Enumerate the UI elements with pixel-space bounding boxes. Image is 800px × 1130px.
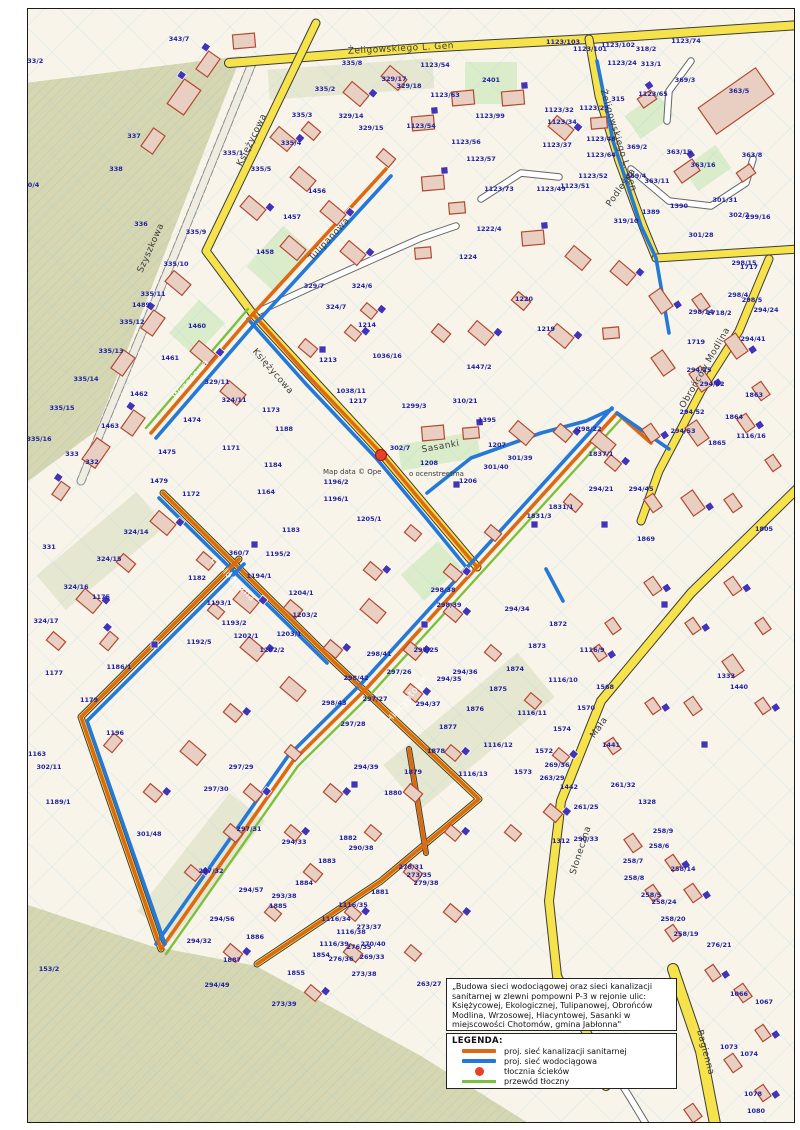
building [501, 90, 524, 106]
parcel-label: 335/13 [99, 347, 124, 355]
map-frame: 343/7133/2337338340/4336335/8335/2335/33… [27, 8, 795, 1123]
parcel-label: 324/16 [64, 583, 89, 591]
parcel-label: 1116/16 [736, 432, 766, 440]
parcel-label: 1205/1 [357, 515, 382, 523]
parcel-label: 1074 [740, 1050, 759, 1058]
parcel-label: 1874 [506, 665, 525, 673]
parcel-label: 293/38 [272, 892, 297, 900]
parcel-label: 369/2 [627, 143, 647, 151]
parcel-label: 294/35 [437, 675, 462, 683]
parcel-label: 1873 [528, 642, 546, 650]
parcel-label: 1186/1 [107, 663, 132, 671]
parcel-label: 1837/1 [589, 450, 614, 458]
parcel-label: 1479 [150, 477, 169, 485]
parcel-label: 1328 [638, 798, 657, 806]
parcel-label: 258/24 [652, 898, 677, 906]
parcel-label: 310/21 [453, 397, 478, 405]
building [415, 247, 432, 259]
parcel-label: 363/11 [645, 177, 670, 185]
parcel-label: 263/27 [417, 980, 442, 988]
address-marker [521, 82, 529, 90]
parcel-label: 133/2 [28, 57, 43, 65]
parcel-label: 335/4 [281, 139, 302, 147]
parcel-label: 294/37 [416, 700, 441, 708]
parcel-label: 298/38 [431, 586, 456, 594]
parcel-label: 1207 [488, 441, 506, 449]
parcel-label: 1831/3 [527, 512, 552, 520]
parcel-label: 335/8 [342, 59, 363, 67]
parcel-label: 1440 [730, 683, 749, 691]
parcel-label: 1460 [188, 322, 207, 330]
parcel-label: 336 [134, 220, 148, 228]
parcel-label: 335/3 [292, 111, 312, 119]
parcel-label: 1224 [459, 253, 478, 261]
parcel-label: 1875 [489, 685, 508, 693]
parcel-label: 298/5 [742, 296, 763, 304]
parcel-label: 1882 [339, 834, 357, 842]
address-marker [421, 621, 428, 628]
parcel-label: 369/3 [675, 76, 695, 84]
project-title-box: „Budowa sieci wodociągowej oraz sieci ka… [446, 978, 677, 1031]
address-marker [351, 781, 358, 788]
parcel-label: 1222/4 [477, 225, 502, 233]
parcel-label: 1457 [283, 213, 301, 221]
parcel-label: 1123/54 [420, 61, 450, 69]
legend-box: LEGENDA: proj. sieć kanalizacji sanitarn… [446, 1033, 677, 1089]
address-marker [541, 222, 549, 230]
parcel-label: 297/29 [229, 763, 254, 771]
parcel-label: 302/11 [37, 763, 62, 771]
parcel-label: 1877 [439, 723, 457, 731]
parcel-label: 1884 [295, 879, 314, 887]
parcel-label: 1880 [384, 789, 403, 797]
parcel-label: 1173 [262, 406, 280, 414]
parcel-label: 1123/49 [536, 185, 566, 193]
legend-label: tłocznia ścieków [504, 1067, 569, 1076]
parcel-label: 258/9 [653, 827, 674, 835]
parcel-label: 1805 [755, 525, 774, 533]
parcel-label: 1195/2 [266, 550, 291, 558]
parcel-label: 1123/34 [547, 118, 577, 126]
parcel-label: 1299/3 [402, 402, 427, 410]
parcel-label: 301/28 [689, 231, 714, 239]
parcel-label: 298/43 [322, 699, 347, 707]
address-marker [251, 541, 258, 548]
parcel-label: 329/14 [339, 112, 364, 120]
parcel-label: 324/17 [34, 617, 59, 625]
parcel-label: 332 [85, 458, 99, 466]
parcel-label: 294/32 [187, 937, 212, 945]
building [591, 117, 608, 129]
parcel-label: 1188 [275, 425, 294, 433]
parcel-label: 1116/10 [548, 676, 578, 684]
parcel-label: 1066 [730, 990, 749, 998]
map-attribution: Map data © Ope [323, 468, 381, 476]
parcel-label: 301/40 [484, 463, 509, 471]
address-marker [431, 107, 439, 115]
address-marker [151, 641, 158, 648]
parcel-label: 1572 [535, 747, 553, 755]
parcel-label: 1067 [755, 998, 773, 1006]
parcel-label: 335/9 [186, 228, 207, 236]
parcel-label: 329/18 [397, 82, 422, 90]
parcel-label: 1312 [552, 837, 570, 845]
parcel-label: 297/26 [387, 668, 412, 676]
address-marker [441, 167, 449, 175]
parcel-label: 276/21 [707, 941, 732, 949]
parcel-label: 298/39 [437, 601, 462, 609]
parcel-label: 297/25 [414, 646, 439, 654]
parcel-label: 270/40 [361, 940, 386, 948]
parcel-label: 1863 [745, 391, 763, 399]
parcel-label: 1193/1 [207, 599, 232, 607]
parcel-label: 258/20 [661, 915, 686, 923]
parcel-label: 343/7 [169, 35, 189, 43]
parcel-label: 1203/1 [277, 630, 302, 638]
parcel-label: 263/29 [540, 774, 565, 782]
parcel-label: 1164 [257, 488, 276, 496]
parcel-label: 363/16 [691, 161, 716, 169]
parcel-label: 1831/1 [549, 503, 574, 511]
parcel-label: 1219 [537, 325, 556, 333]
parcel-label: 273/38 [352, 970, 377, 978]
parcel-label: 258/7 [623, 857, 643, 865]
parcel-label: 1883 [318, 857, 336, 865]
legend-item-water: proj. sieć wodociągowa [452, 1056, 671, 1066]
parcel-label: 319/10 [614, 217, 639, 225]
legend-heading: LEGENDA: [452, 1036, 671, 1046]
parcel-label: 340/4 [28, 181, 40, 189]
pressure-line-swatch [462, 1080, 496, 1083]
parcel-label: 1456 [308, 187, 327, 195]
parcel-label: 324/11 [222, 396, 247, 404]
parcel-label: 2401 [482, 76, 501, 84]
parcel-label: 335/12 [120, 318, 145, 326]
parcel-label: 294/41 [741, 335, 766, 343]
parcel-label: 1196/1 [324, 495, 349, 503]
parcel-label: 297/30 [204, 785, 229, 793]
parcel-label: 276/36 [329, 955, 354, 963]
parcel-label: 335/2 [315, 85, 335, 93]
parcel-label: 1202/1 [234, 632, 259, 640]
parcel-label: 1204/1 [289, 589, 314, 597]
parcel-label: 1208 [420, 459, 439, 467]
parcel-label: 1123/64 [586, 151, 616, 159]
parcel-label: 333 [65, 450, 79, 458]
parcel-label: 324/15 [97, 555, 122, 563]
pump-station-dot [376, 450, 387, 461]
parcel-label: 294/34 [505, 605, 530, 613]
parcel-label: 1116/35 [338, 901, 368, 909]
parcel-label: 1116/12 [483, 741, 513, 749]
parcel-label: 261/32 [611, 781, 636, 789]
project-title: „Budowa sieci wodociągowej oraz sieci ka… [452, 982, 652, 1029]
parcel-label: 1038/11 [336, 387, 366, 395]
parcel-label: 1183 [282, 526, 300, 534]
parcel-label: 1116/34 [321, 915, 351, 923]
pump-dot-swatch [462, 1067, 496, 1076]
parcel-label: 258/6 [649, 842, 670, 850]
parcel-label: 1878 [427, 747, 446, 755]
legend-item-pump: tłocznia ścieków [452, 1066, 671, 1076]
parcel-label: 294/52 [680, 408, 705, 416]
parcel-label: 258/19 [674, 930, 699, 938]
parcel-label: 1568 [596, 683, 615, 691]
parcel-label: 297/28 [341, 720, 366, 728]
parcel-label: 1390 [670, 202, 689, 210]
parcel-label: 1202/2 [260, 646, 285, 654]
parcel-label: 1078 [744, 1090, 763, 1098]
parcel-label: 1123/65 [638, 90, 668, 98]
parcel-label: 1879 [404, 768, 423, 776]
parcel-label: 1220 [515, 295, 534, 303]
parcel-label: 335/16 [28, 435, 52, 443]
parcel-label: 1864 [725, 413, 744, 421]
parcel-label: 1442 [560, 783, 578, 791]
parcel-label: 1194/1 [247, 572, 272, 580]
parcel-label: 1036/16 [372, 352, 402, 360]
parcel-label: 290/38 [349, 844, 374, 852]
parcel-label: 1213 [319, 356, 337, 364]
parcel-label: 1881 [371, 888, 390, 896]
parcel-label: 153/2 [39, 965, 59, 973]
parcel-label: 1123/99 [475, 112, 505, 120]
parcel-label: 1196 [106, 729, 125, 737]
parcel-label: 1719 [687, 338, 706, 346]
parcel-label: 1123/52 [578, 172, 608, 180]
building [463, 427, 480, 439]
parcel-label: 1123/73 [484, 185, 514, 193]
parcel-label: 294/21 [589, 485, 614, 493]
parcel-label: 318/2 [636, 45, 656, 53]
address-marker [701, 741, 708, 748]
parcel-label: 294/45 [629, 485, 654, 493]
parcel-label: 1116/39 [319, 940, 349, 948]
parcel-label: 1189/1 [46, 798, 71, 806]
parcel-label: 273/35 [407, 871, 432, 879]
parcel-label: 313/1 [641, 60, 662, 68]
parcel-label: 297/32 [199, 867, 224, 875]
address-marker [531, 521, 538, 528]
parcel-label: 279/38 [414, 879, 439, 887]
parcel-label: 1163 [28, 750, 46, 758]
parcel-label: 329/7 [304, 282, 324, 290]
parcel-label: 363/15 [667, 148, 692, 156]
parcel-label: 329/11 [205, 378, 230, 386]
parcel-label: 294/57 [239, 886, 264, 894]
parcel-label: 301/48 [137, 830, 162, 838]
parcel-label: 1574 [553, 725, 572, 733]
parcel-label: 1172 [182, 490, 200, 498]
parcel-label: 1196/2 [324, 478, 349, 486]
parcel-label: 294/49 [205, 981, 230, 989]
parcel-label: 1865 [708, 439, 727, 447]
parcel-label: 1203/2 [293, 611, 318, 619]
address-marker [601, 521, 608, 528]
parcel-label: 1855 [287, 969, 306, 977]
parcel-label: 1887 [223, 956, 241, 964]
parcel-label: 273/37 [357, 923, 382, 931]
parcel-label: 1177 [45, 669, 63, 677]
parcel-label: 1080 [747, 1107, 766, 1115]
legend-label: proj. sieć kanalizacji sanitarnej [504, 1047, 627, 1056]
parcel-label: 294/53 [671, 427, 696, 435]
parcel-label: 1182 [188, 574, 206, 582]
parcel-label: 360/7 [229, 549, 249, 557]
address-marker [319, 346, 326, 353]
parcel-label: 1463 [101, 422, 119, 430]
building [449, 202, 466, 214]
parcel-label: 1123/74 [671, 37, 701, 45]
parcel-label: 335/14 [74, 375, 99, 383]
parcel-label: 1184 [264, 461, 283, 469]
parcel-label: 337 [127, 132, 141, 140]
building [521, 230, 544, 246]
parcel-label: 1073 [720, 1043, 738, 1051]
parcel-label: 258/14 [671, 865, 696, 873]
parcel-label: 1123/102 [601, 41, 635, 49]
parcel-label: 297/27 [363, 695, 388, 703]
parcel-label: 258/8 [624, 874, 645, 882]
parcel-label: 335/10 [164, 260, 189, 268]
parcel-label: 1458 [256, 248, 275, 256]
legend-label: przewód tłoczny [504, 1077, 569, 1086]
parcel-label: 273/39 [272, 1000, 297, 1008]
parcel-label: 1123/37 [542, 141, 572, 149]
parcel-label: 1333 [717, 672, 735, 680]
parcel-label: 1171 [222, 444, 241, 452]
parcel-label: 1489 [132, 301, 151, 309]
parcel-label: 1717 [740, 263, 758, 271]
parcel-label: 261/25 [574, 803, 599, 811]
parcel-label: 363/8 [742, 151, 763, 159]
parcel-label: 315 [611, 95, 625, 103]
parcel-label: 1214 [358, 321, 377, 329]
map-canvas[interactable]: 343/7133/2337338340/4336335/8335/2335/33… [28, 9, 794, 1122]
parcel-label: 269/36 [545, 761, 570, 769]
parcel-label: 1116/9 [580, 646, 605, 654]
parcel-label: 294/39 [354, 763, 379, 771]
parcel-label: 294/24 [754, 306, 779, 314]
parcel-label: 324/14 [124, 528, 149, 536]
parcel-label: 335/5 [251, 165, 272, 173]
parcel-label: 1395 [478, 416, 497, 424]
parcel-label: 1869 [637, 535, 656, 543]
parcel-label: 1474 [183, 416, 202, 424]
parcel-label: 335/15 [50, 404, 75, 412]
parcel-label: 1461 [161, 354, 180, 362]
parcel-label: 329/15 [359, 124, 384, 132]
parcel-label: 1718/2 [707, 309, 732, 317]
parcel-label: 1206 [459, 477, 478, 485]
building [421, 425, 444, 441]
building [232, 33, 255, 49]
parcel-label: 1217 [349, 397, 367, 405]
parcel-label: 1441 [602, 741, 621, 749]
map-sheet: 343/7133/2337338340/4336335/8335/2335/33… [0, 0, 800, 1130]
parcel-label: 298/22 [577, 425, 602, 433]
sanitary-line-swatch [462, 1049, 496, 1053]
parcel-label: 1876 [466, 705, 485, 713]
parcel-label: 1570 [577, 704, 596, 712]
water-line-swatch [462, 1059, 496, 1063]
parcel-label: 1175 [92, 593, 111, 601]
parcel-label: 294/33 [282, 838, 307, 846]
parcel-label: 1447/2 [467, 363, 492, 371]
parcel-label: 1886 [246, 933, 265, 941]
parcel-label: 1193/2 [222, 619, 247, 627]
parcel-label: 1116/13 [458, 770, 488, 778]
parcel-label: 301/31 [713, 196, 738, 204]
parcel-label: 1462 [130, 390, 148, 398]
parcel-label: 294/56 [210, 915, 235, 923]
parcel-label: 331 [42, 543, 56, 551]
legend-item-pressure: przewód tłoczny [452, 1076, 671, 1086]
parcel-label: 278/31 [399, 863, 424, 871]
parcel-label: 1123/54 [406, 122, 436, 130]
parcel-label: 1885 [269, 902, 288, 910]
parcel-label: 324/6 [352, 282, 373, 290]
parcel-label: 324/7 [326, 303, 346, 311]
building [421, 175, 444, 191]
parcel-label: 1389 [642, 208, 661, 216]
parcel-label: 302/7 [390, 444, 410, 452]
legend-label: proj. sieć wodociągowa [504, 1057, 597, 1066]
parcel-label: 299/16 [746, 213, 771, 221]
parcel-label: 297/31 [237, 825, 262, 833]
building [603, 327, 620, 339]
parcel-label: 1123/56 [451, 138, 481, 146]
parcel-label: 298/42 [344, 674, 369, 682]
legend-item-sanitary: proj. sieć kanalizacji sanitarnej [452, 1046, 671, 1056]
map-attribution-2: o ocenstreetma [409, 470, 464, 478]
parcel-label: 363/5 [729, 87, 750, 95]
parcel-label: 1573 [514, 768, 532, 776]
parcel-label: 1123/57 [466, 155, 496, 163]
parcel-label: 1116/11 [517, 709, 547, 717]
parcel-label: 1123/24 [607, 59, 637, 67]
address-marker [661, 601, 668, 608]
parcel-label: 1475 [158, 448, 177, 456]
parcel-label: 1123/32 [544, 106, 574, 114]
parcel-label: 335/11 [141, 290, 166, 298]
parcel-label: 1192/5 [187, 638, 212, 646]
parcel-label: 338 [109, 165, 123, 173]
parcel-label: 301/39 [508, 454, 533, 462]
parcel-label: 1872 [549, 620, 567, 628]
parcel-label: 269/33 [360, 953, 385, 961]
parcel-label: 1179 [80, 696, 99, 704]
parcel-label: 298/41 [367, 650, 392, 658]
parcel-label: 1123/63 [430, 91, 460, 99]
